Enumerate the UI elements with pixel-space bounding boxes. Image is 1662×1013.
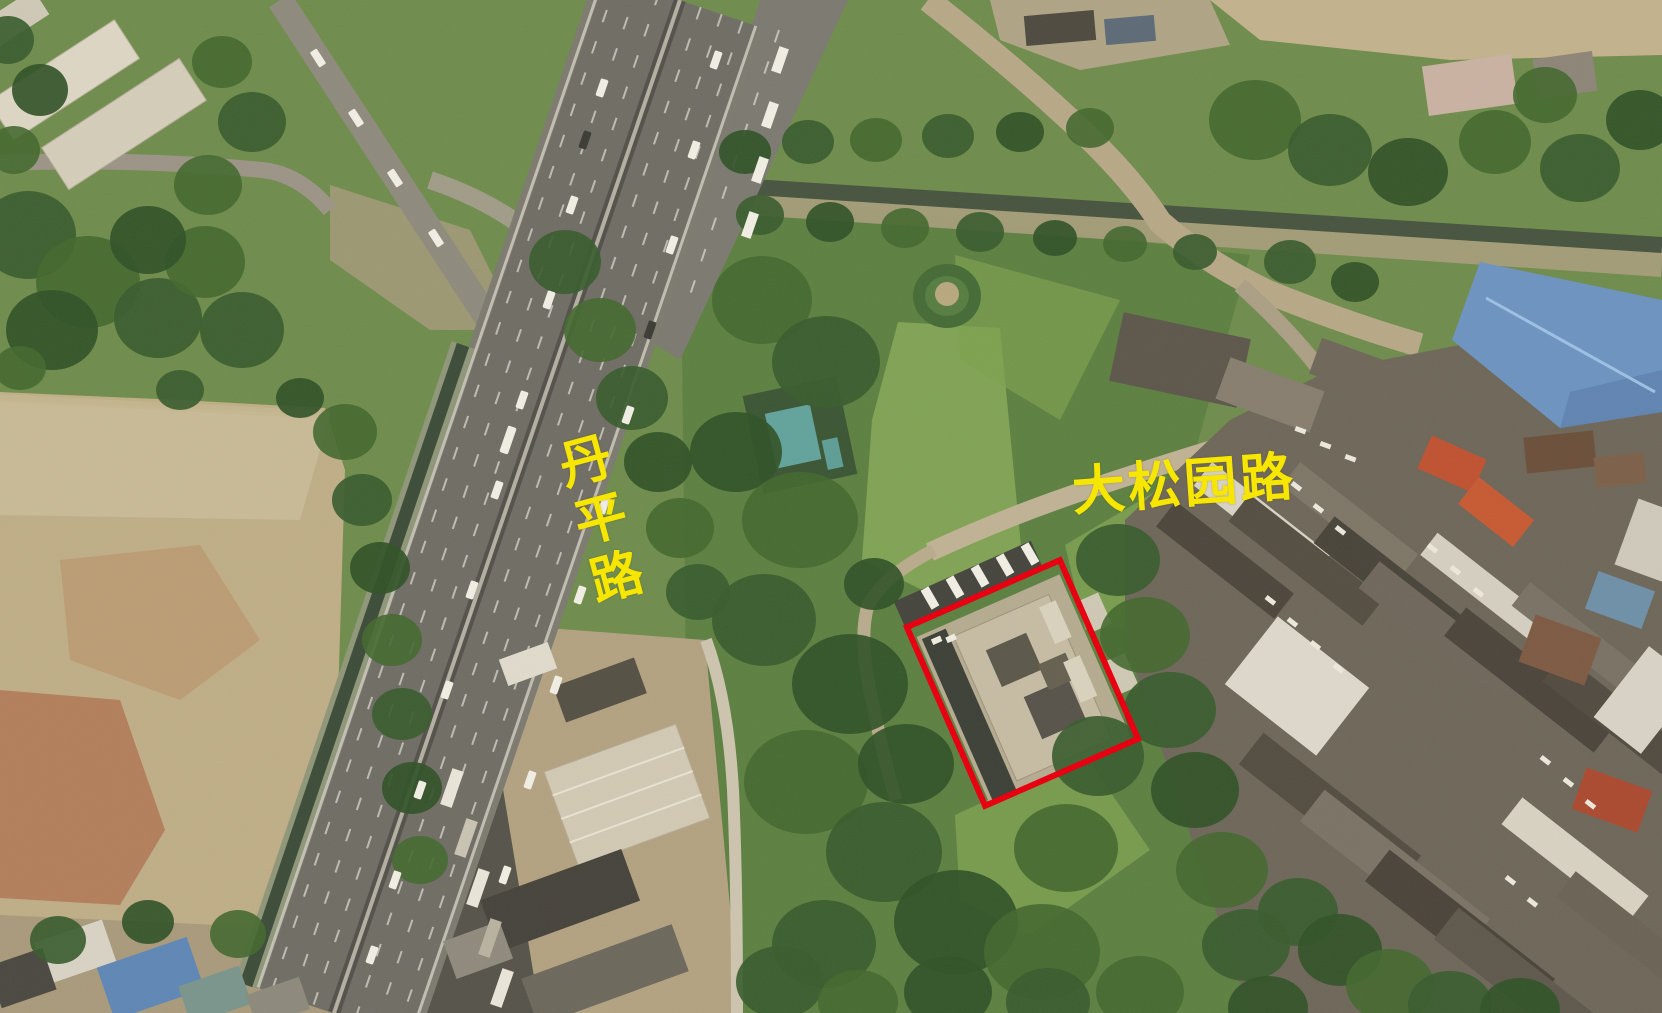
satellite-scene: .t1{fill:#3a5c2e;opacity:.92}.t2{fill:#4…	[0, 0, 1662, 1013]
road-label-dasongyuan: 大松园路	[1069, 434, 1298, 525]
photo-grain	[0, 0, 1662, 1013]
satellite-image: .t1{fill:#3a5c2e;opacity:.92}.t2{fill:#4…	[0, 0, 1662, 1013]
